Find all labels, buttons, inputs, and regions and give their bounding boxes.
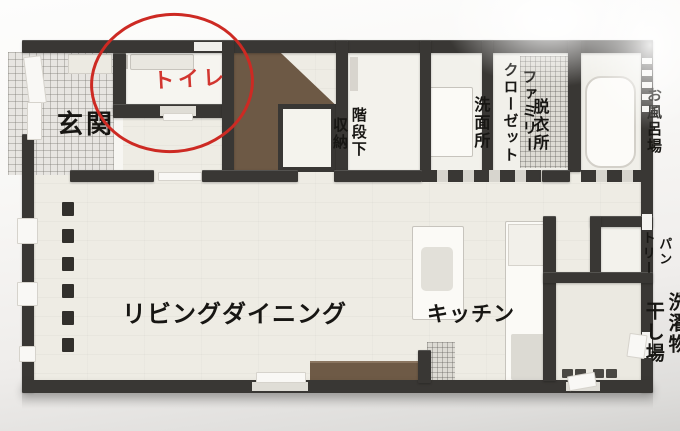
corridor-sliding-doors [422, 170, 542, 182]
room-label-kitchen: キッチン [427, 298, 515, 328]
pantry-line2: トリー [641, 231, 655, 276]
room-label-laundry: 洗濯物 干し場 [563, 292, 680, 364]
right-window [642, 214, 652, 230]
laundry-line1: 洗濯物 [666, 292, 680, 364]
wall-bottom [22, 380, 653, 393]
plan-shadow [22, 393, 653, 409]
wall-dressing-bath [568, 40, 581, 172]
stair-storage-line2: 収納 [331, 117, 347, 158]
room-label-pantry: パン トリー [600, 231, 671, 276]
wall-kitchen-right [543, 216, 556, 381]
wall-stub-kitchen [418, 350, 431, 383]
stove [511, 334, 545, 380]
front-door-panel [27, 102, 42, 140]
room-label-bathroom: お風呂場 [598, 87, 661, 155]
bathroom-text: お風呂場 [645, 87, 661, 155]
terrace-door [252, 382, 308, 391]
wall-niche [62, 202, 74, 216]
kitchen-sink [421, 247, 453, 291]
laundry-line2: 干し場 [643, 301, 663, 364]
corridor-sliding-doors [581, 170, 641, 182]
floor-plan: 玄関 トイレ 階段下 収納 ファミリー クローゼット 洗面所 脱衣所 お風呂場 … [0, 0, 680, 431]
wall-niche [62, 311, 74, 325]
wall-corridor [334, 170, 422, 182]
living-window [17, 218, 38, 244]
washroom-text: 洗面所 [471, 96, 488, 150]
corridor-door-panel [158, 172, 202, 181]
closet-pole [350, 57, 358, 91]
room-label-living-dining: リビングダイニング [122, 294, 347, 329]
room-label-stair-storage: 階段下 収納 [284, 107, 366, 158]
living-window [17, 282, 38, 306]
wall-niche [62, 284, 74, 298]
kitchen-appliance [427, 342, 455, 380]
wall-niche [62, 338, 74, 352]
wall-corridor [542, 170, 570, 182]
room-label-dressing: 脱衣所 [496, 98, 546, 152]
wall-niche [62, 257, 74, 271]
laundry-tile [606, 369, 617, 378]
wall-corridor [202, 170, 298, 182]
terrace-door-panel [256, 372, 306, 383]
room-label-washroom: 洗面所 [437, 96, 487, 150]
pantry-line1: パン [658, 237, 672, 276]
wall-corridor [70, 170, 154, 182]
wall-niche [62, 229, 74, 243]
living-window [19, 346, 36, 362]
dressing-text: 脱衣所 [530, 98, 547, 152]
